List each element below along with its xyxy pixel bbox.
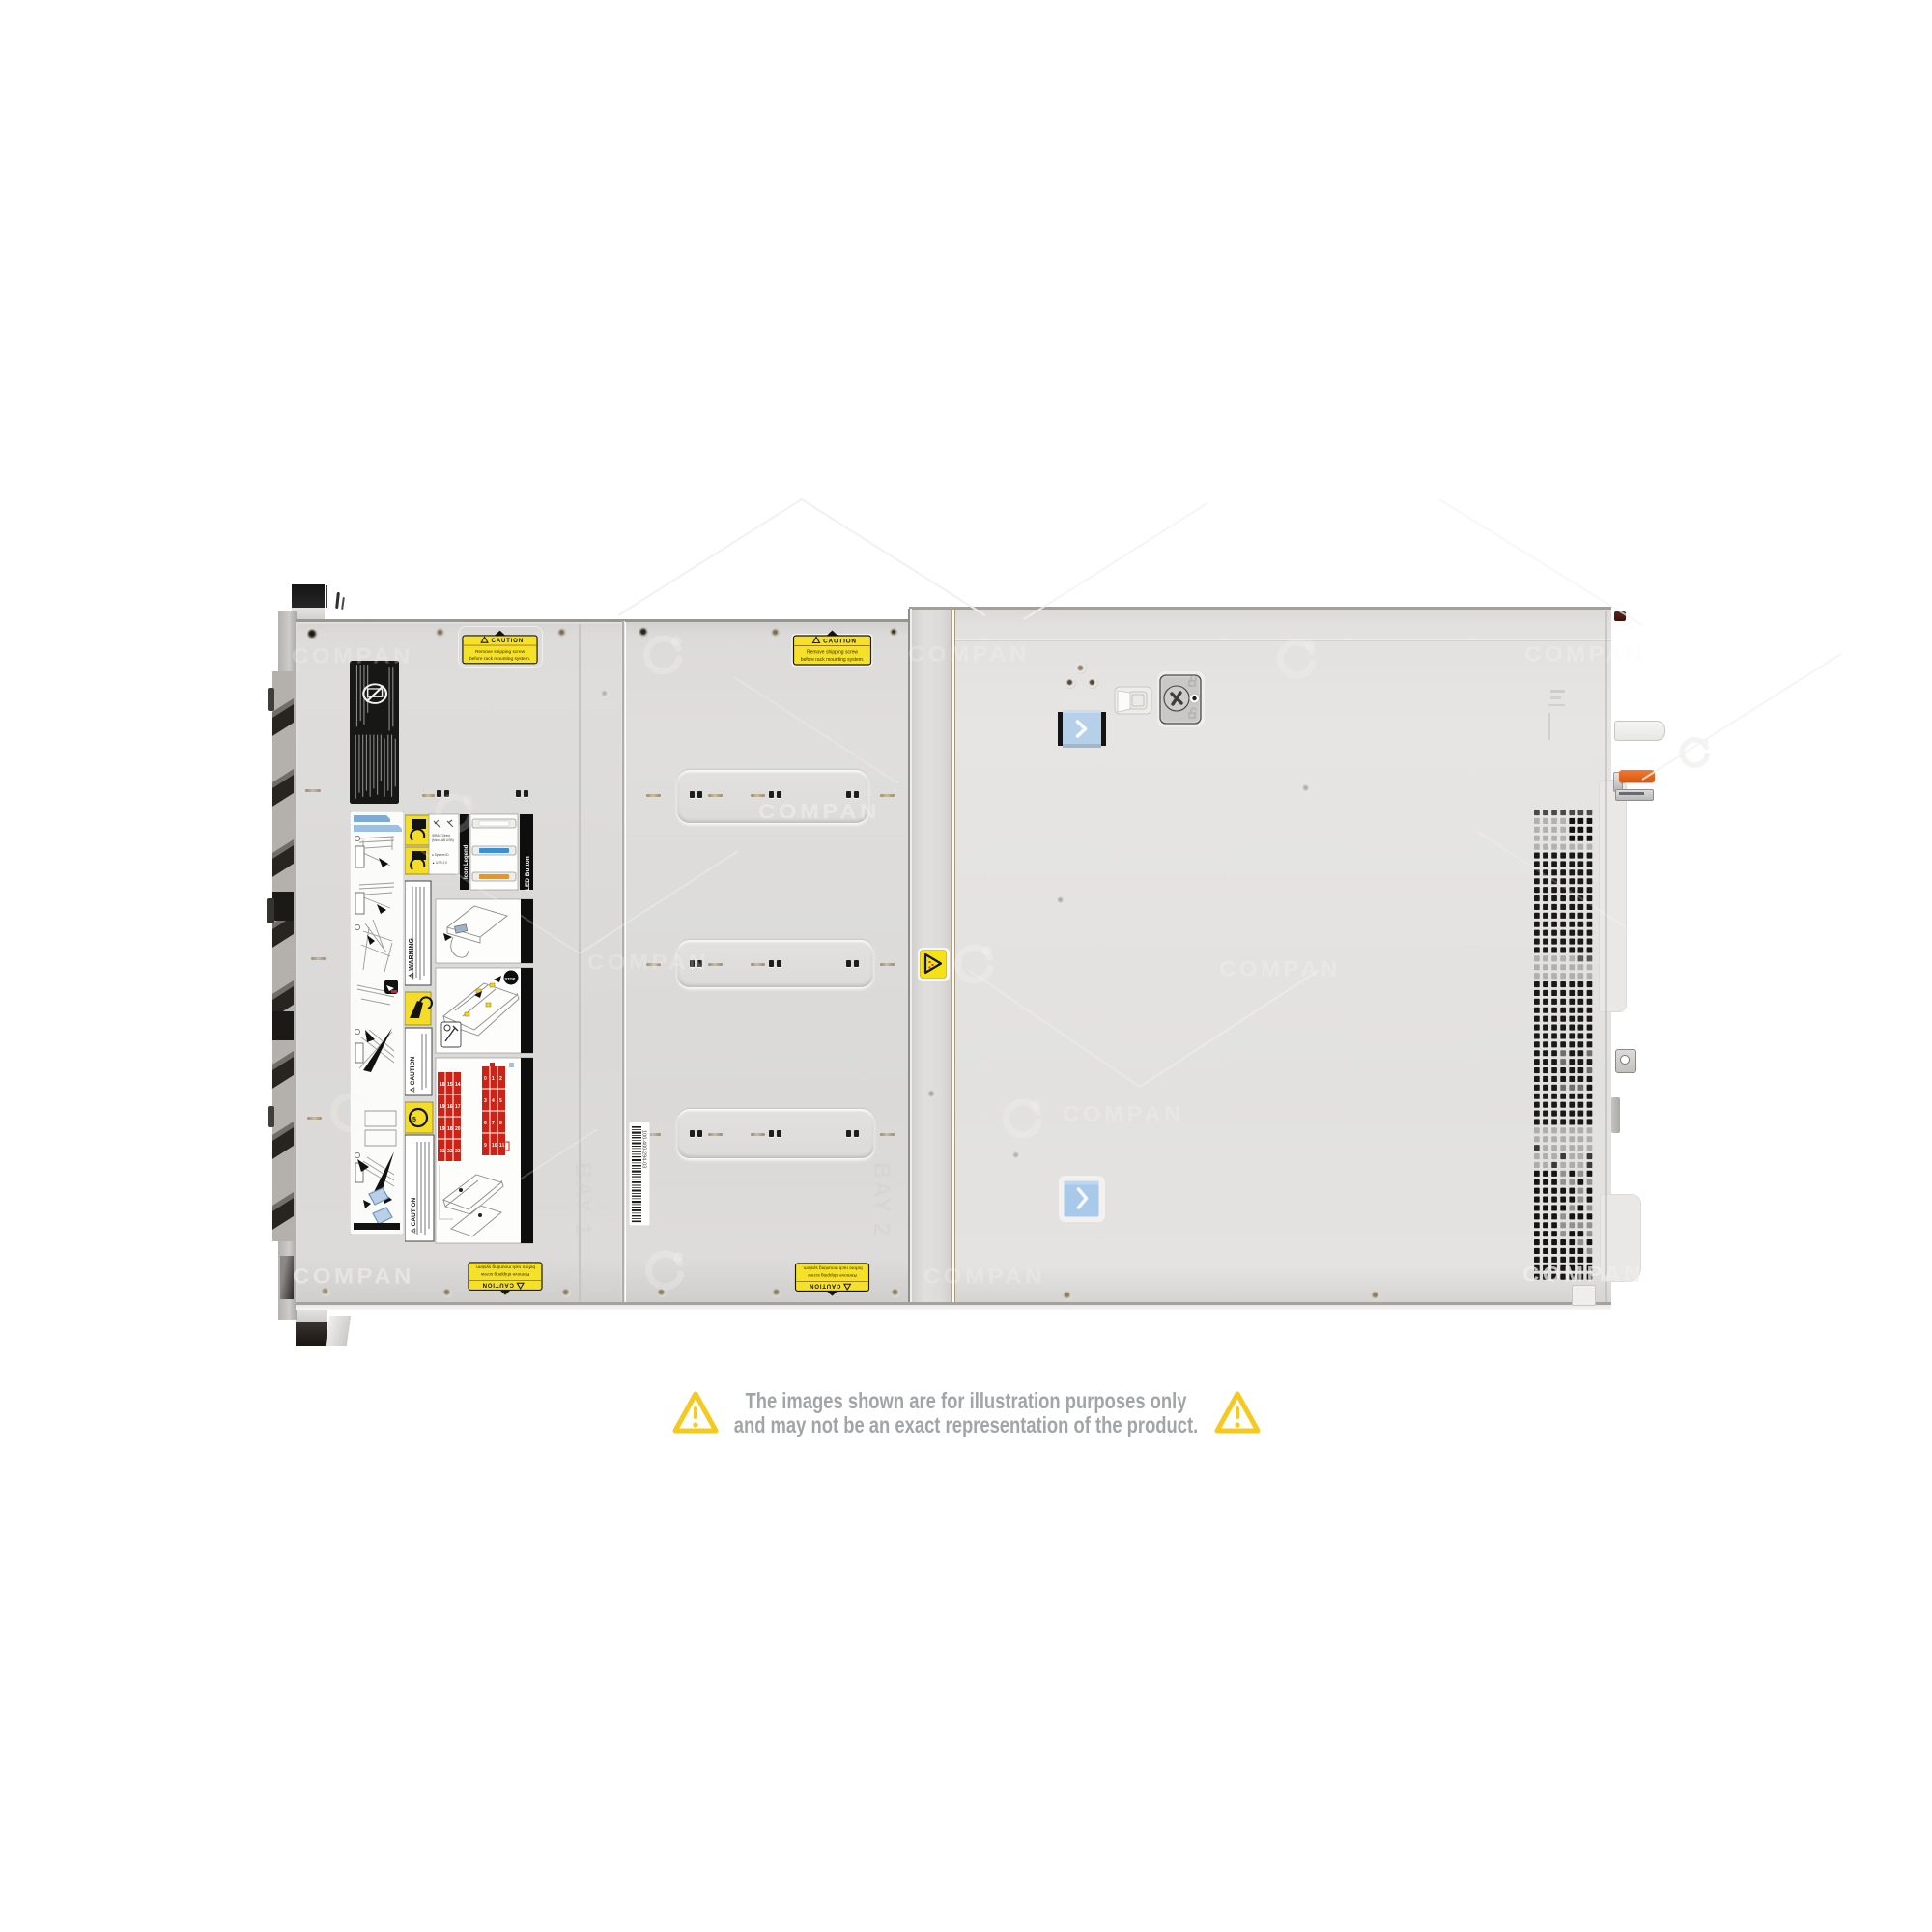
svg-text:● System ID: ● System ID (432, 853, 449, 857)
svg-text:before rack mounting system.: before rack mounting system. (469, 656, 530, 662)
svg-text:18: 18 (440, 1082, 445, 1088)
svg-text:5: 5 (499, 1098, 502, 1104)
svg-text:⚠ WARNING: ⚠ WARNING (408, 937, 415, 979)
svg-text:22: 22 (447, 1149, 453, 1154)
svg-text:1: 1 (492, 1076, 495, 1082)
svg-text:CAUTION: CAUTION (809, 1282, 840, 1289)
svg-text:8: 8 (499, 1121, 502, 1126)
svg-text:before rack mounting system.: before rack mounting system. (801, 657, 865, 663)
svg-text:⚠ CAUTION: ⚠ CAUTION (409, 1056, 416, 1093)
svg-text:CAUTION: CAUTION (482, 1281, 514, 1288)
svg-text:14: 14 (455, 1082, 461, 1088)
svg-text:Remove shipping screw: Remove shipping screw (808, 1272, 857, 1278)
svg-text:LED Button: LED Button (525, 856, 531, 891)
svg-text:100-400-294-03: 100-400-294-03 (641, 1130, 647, 1168)
svg-text:19: 19 (440, 1104, 445, 1110)
svg-text:19: 19 (440, 1126, 445, 1132)
svg-text:0: 0 (484, 1076, 487, 1082)
svg-text:5: 5 (412, 1117, 416, 1123)
svg-text:4: 4 (492, 1098, 495, 1104)
svg-text:3: 3 (484, 1098, 487, 1104)
svg-text:STOP: STOP (505, 977, 516, 981)
svg-text:before rack mounting system.: before rack mounting system. (802, 1265, 862, 1271)
svg-text:2: 2 (499, 1076, 502, 1082)
svg-text:23: 23 (455, 1149, 461, 1154)
svg-text:18: 18 (447, 1126, 453, 1132)
svg-text:16: 16 (447, 1104, 453, 1110)
svg-text:6: 6 (484, 1121, 487, 1126)
svg-text:⚠ CAUTION: ⚠ CAUTION (410, 1197, 417, 1234)
svg-text:Remove shipping screw: Remove shipping screw (480, 1271, 529, 1277)
svg-text:before rack mounting system.: before rack mounting system. (475, 1264, 535, 1270)
svg-text:10: 10 (492, 1143, 497, 1149)
svg-text:17: 17 (455, 1104, 461, 1110)
svg-text:Remove shipping screw: Remove shipping screw (475, 649, 526, 655)
svg-text:CAUTION: CAUTION (491, 638, 523, 644)
svg-text:Remove shipping screw: Remove shipping screw (807, 650, 858, 656)
svg-text:Icon Legend: Icon Legend (464, 844, 469, 879)
svg-text:20: 20 (455, 1126, 461, 1132)
svg-text:21: 21 (440, 1149, 445, 1154)
svg-text:(Micro-AB USB): (Micro-AB USB) (432, 838, 454, 842)
svg-text:15: 15 (447, 1082, 453, 1088)
svg-text:7: 7 (492, 1121, 495, 1126)
svg-text:CAUTION: CAUTION (823, 639, 857, 645)
svg-text:9: 9 (484, 1143, 487, 1149)
